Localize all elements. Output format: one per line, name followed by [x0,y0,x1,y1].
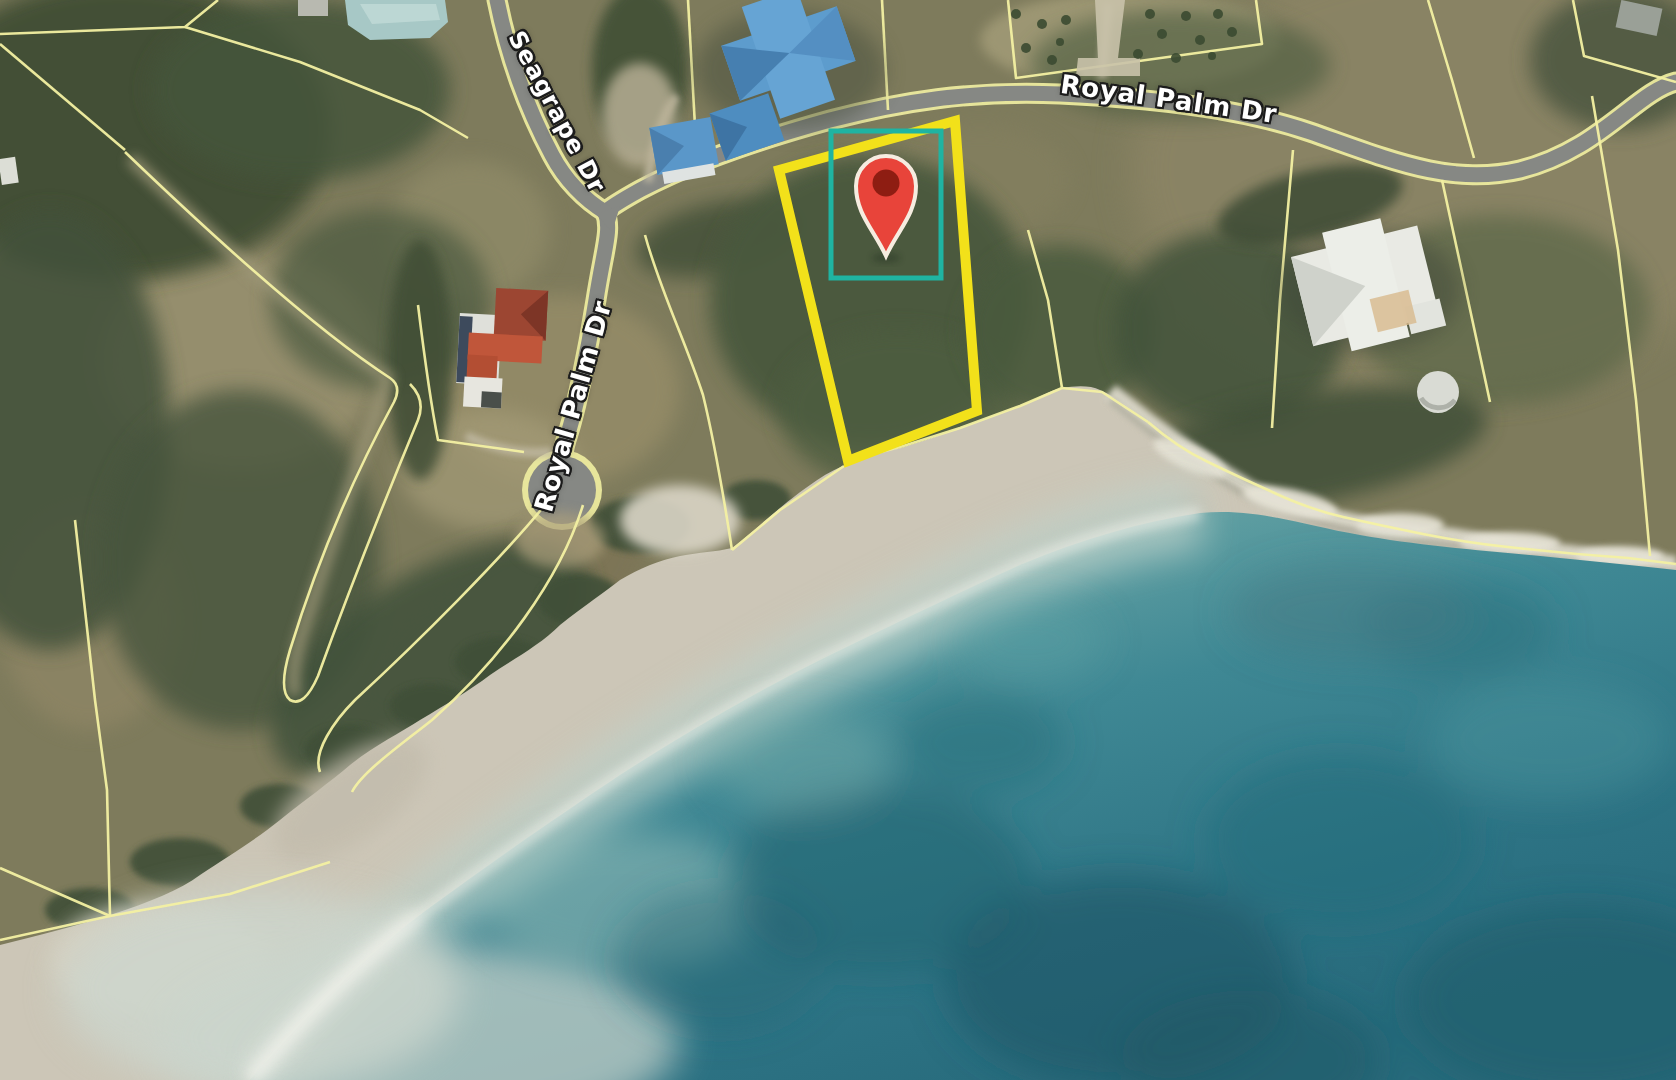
satellite-imagery [0,0,1676,1080]
satellite-map-viewport[interactable]: Royal Palm Dr Seagrape Dr Royal Palm Dr [0,0,1676,1080]
